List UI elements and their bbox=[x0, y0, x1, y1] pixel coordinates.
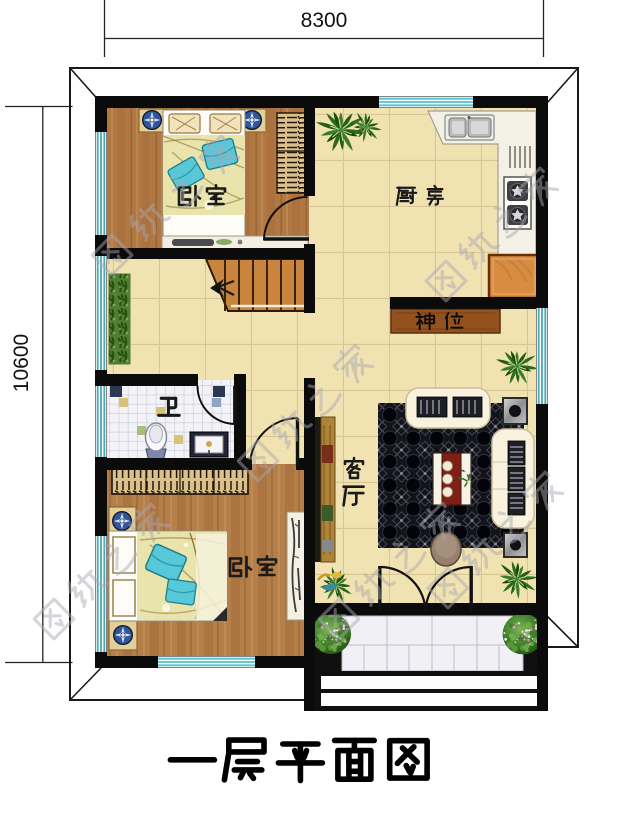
svg-text:8300: 8300 bbox=[301, 9, 348, 32]
svg-text:10600: 10600 bbox=[10, 334, 33, 392]
